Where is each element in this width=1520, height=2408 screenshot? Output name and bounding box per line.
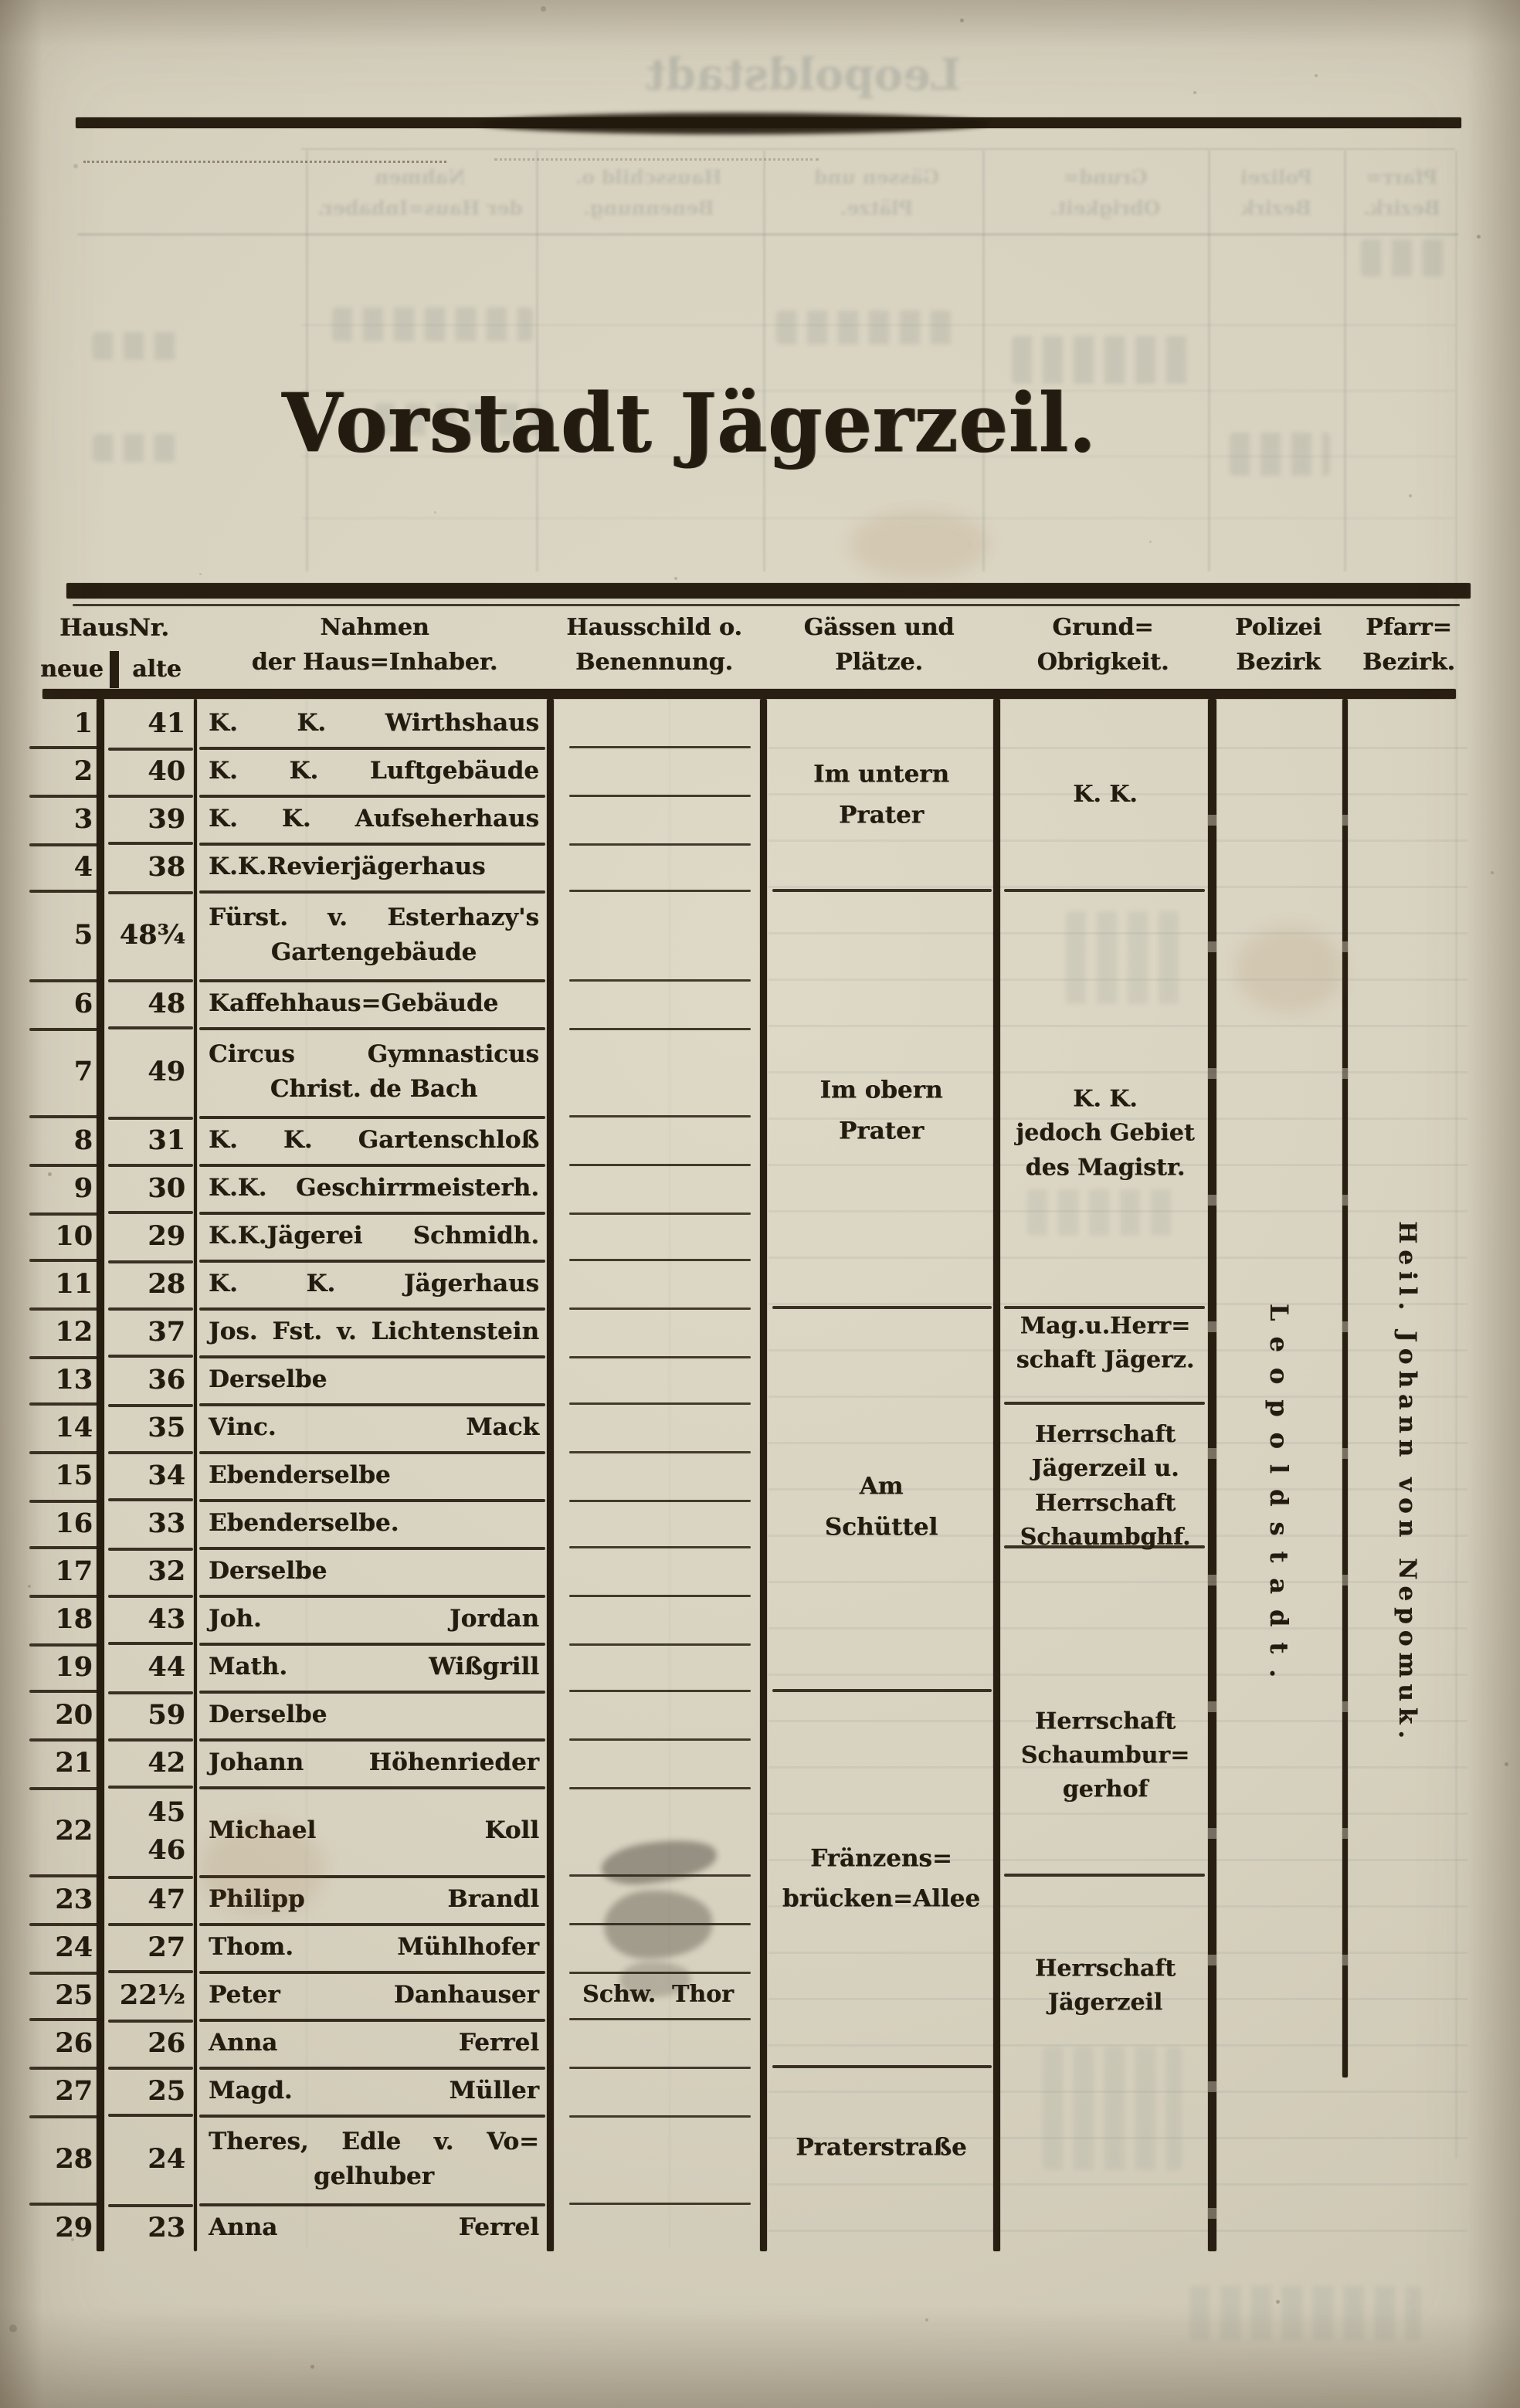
owner-name-cell: K.K. Geschirrmeisterh. xyxy=(202,1164,545,1212)
authority-section-label: K. K. jedoch Gebiet des Magistr. xyxy=(1004,1082,1206,1185)
house-number-new-cell: 27 xyxy=(31,2067,97,2115)
paper-speck xyxy=(674,577,677,580)
authority-section-separator xyxy=(1004,1874,1205,1877)
house-number-new-cell: 24 xyxy=(31,1923,97,1971)
house-number-new-cell: 19 xyxy=(31,1643,97,1691)
street-section-label: Fränzens= brücken=Allee xyxy=(771,1838,992,1919)
house-number-new-cell: 11 xyxy=(31,1260,97,1307)
owner-name-cell: Math. Wißgrill xyxy=(202,1643,545,1691)
owner-name-cell: Ebenderselbe xyxy=(202,1451,545,1499)
authority-section-label: Herrschaft Jägerzeil u. Herrschaft Schau… xyxy=(1004,1418,1206,1555)
house-sign-line xyxy=(569,2115,751,2118)
house-number-old-cell: 38 xyxy=(108,843,190,890)
hausnr-label: HausNr. xyxy=(59,610,169,646)
paper-speck xyxy=(1505,1762,1508,1766)
authority-section-label: K. K. xyxy=(1004,778,1206,812)
paper-speck xyxy=(434,511,436,514)
paper-speck xyxy=(1409,494,1412,497)
house-number-new-cell: 16 xyxy=(31,1499,97,1547)
house-sign-line xyxy=(569,2067,751,2069)
owner-name-cell: Joh. Jordan xyxy=(202,1595,545,1643)
authority-section-separator xyxy=(1004,1306,1205,1309)
owner-name-cell: K. K. Gartenschloß xyxy=(202,1116,545,1164)
house-number-old-cell: 59 xyxy=(108,1691,190,1738)
house-sign-line xyxy=(569,1259,751,1261)
house-number-new-cell: 17 xyxy=(31,1547,97,1595)
show-through-text: Pfarr= Bezirk. xyxy=(1352,151,1452,235)
ink-smudge xyxy=(604,1891,712,1959)
parish-district-label: Heil. Johann von Nepomuk. xyxy=(1393,1221,1421,1745)
owner-name-cell: Theres, Edle v. Vo=gelhuber xyxy=(202,2115,545,2203)
owner-name-cell: K. K. Wirthshaus xyxy=(202,699,545,747)
house-number-new-cell: 12 xyxy=(31,1307,97,1355)
house-number-old-cell: 23 xyxy=(108,2203,190,2251)
owner-name-cell: Ebenderselbe. xyxy=(202,1499,545,1547)
ink-smudge xyxy=(599,1835,718,1889)
house-sign-line xyxy=(569,1546,751,1548)
house-number-new-cell: 28 xyxy=(31,2115,97,2203)
authority-section-separator xyxy=(1004,1402,1205,1405)
house-number-new-cell: 20 xyxy=(31,1691,97,1738)
street-section-label: Im obern Prater xyxy=(771,1070,992,1151)
street-section-label: Im untern Prater xyxy=(771,754,992,835)
owner-name-cell: Derselbe xyxy=(202,1355,545,1403)
house-sign-line xyxy=(569,1595,751,1597)
house-sign-line xyxy=(569,1028,751,1030)
house-number-new-cell: 29 xyxy=(31,2203,97,2251)
house-number-old-cell: 41 xyxy=(108,699,190,747)
house-number-new-cell: 22 xyxy=(31,1786,97,1875)
paper-speck xyxy=(73,164,78,168)
house-number-new-cell: 4 xyxy=(31,843,97,890)
house-sign-line xyxy=(569,1356,751,1358)
house-sign-line xyxy=(569,746,751,748)
paper-speck xyxy=(9,2325,17,2332)
house-number-new-cell: 18 xyxy=(31,1595,97,1643)
header-bottom-rule xyxy=(42,689,1456,699)
owner-name-cell: Derselbe xyxy=(202,1547,545,1595)
owner-name-cell: K. K. Jägerhaus xyxy=(202,1260,545,1307)
house-number-old-cell: 35 xyxy=(108,1403,190,1451)
house-sign-line xyxy=(569,2203,751,2205)
house-number-old-cell: 44 xyxy=(108,1643,190,1691)
hausnr-divider-bar xyxy=(110,651,119,688)
show-through-text: Polizei Bezirk xyxy=(1213,151,1340,235)
house-sign-line xyxy=(569,1115,751,1118)
owner-name-cell: Jos. Fst. v. Lichtenstein xyxy=(202,1307,545,1355)
house-sign-line xyxy=(569,795,751,797)
house-number-old-cell: 40 xyxy=(108,747,190,795)
show-through-title: Leopoldstadt xyxy=(541,45,1066,107)
authority-section-label: Mag.u.Herr= schaft Jägerz. xyxy=(1004,1310,1206,1379)
house-number-old-cell: 27 xyxy=(108,1923,190,1971)
house-number-old-cell: 22½ xyxy=(108,1971,190,2019)
house-number-old-cell: 32 xyxy=(108,1547,190,1595)
column-header-polizei: Polizei Bezirk xyxy=(1217,610,1339,687)
owner-name-cell: K.K.Jägerei Schmidh. xyxy=(202,1212,545,1260)
house-number-old-cell: 30 xyxy=(108,1164,190,1212)
house-sign-line xyxy=(569,1212,751,1215)
street-section-separator xyxy=(772,2065,992,2068)
house-number-old-cell: 48 xyxy=(108,979,190,1027)
house-sign-line xyxy=(569,1164,751,1166)
owner-name-cell: Derselbe xyxy=(202,1691,545,1738)
paper-speck xyxy=(960,19,964,22)
house-number-old-cell: 37 xyxy=(108,1307,190,1355)
authority-section-separator xyxy=(1004,889,1205,892)
house-sign-line xyxy=(569,1451,751,1453)
house-number-new-cell: 3 xyxy=(31,795,97,843)
house-sign-line xyxy=(569,1643,751,1646)
house-number-new-cell: 26 xyxy=(31,2019,97,2067)
column-header-hausnr: HausNr. neue alte xyxy=(34,610,195,687)
street-section-label: Am Schüttel xyxy=(771,1466,992,1547)
authority-section-separator xyxy=(1004,1545,1205,1548)
scanned-register-page: Leopoldstadt Nahmen der Haus=Inhaber. Ha… xyxy=(0,0,1520,2408)
house-sign-line xyxy=(569,843,751,846)
house-number-old-cell: 26 xyxy=(108,2019,190,2067)
column-header-pfarr: Pfarr= Bezirk. xyxy=(1350,610,1467,687)
house-number-old-cell: 48¾ xyxy=(108,890,190,979)
house-sign-line xyxy=(569,1402,751,1405)
house-number-old-cell: 28 xyxy=(108,1260,190,1307)
house-sign-line xyxy=(569,1307,751,1310)
house-number-old-cell: 42 xyxy=(108,1738,190,1786)
show-through-text: Grund= Obrigkeit. xyxy=(1006,151,1205,235)
house-number-old-cell: 39 xyxy=(108,795,190,843)
house-number-new-cell: 15 xyxy=(31,1451,97,1499)
hausnr-alte-label: alte xyxy=(119,652,195,687)
paper-speck xyxy=(1491,871,1494,874)
house-number-new-cell: 2 xyxy=(31,747,97,795)
house-sign-line xyxy=(569,1500,751,1502)
street-section-separator xyxy=(772,1689,992,1692)
house-number-old-cell: 47 xyxy=(108,1875,190,1923)
column-header-hausschild: Hausschild o. Benennung. xyxy=(553,610,755,687)
paper-speck xyxy=(541,6,546,12)
house-number-old-cell: 25 xyxy=(108,2067,190,2115)
paper-speck xyxy=(1149,541,1152,543)
house-number-old-cell: 33 xyxy=(108,1499,190,1547)
house-number-old-cell: 43 xyxy=(108,1595,190,1643)
column-rule xyxy=(1342,699,1348,2077)
house-sign-line xyxy=(569,1738,751,1741)
paper-speck xyxy=(48,1172,52,1176)
owner-name-cell: Anna Ferrel xyxy=(202,2203,545,2251)
house-number-new-cell: 10 xyxy=(31,1212,97,1260)
house-number-new-cell: 23 xyxy=(31,1875,97,1923)
owner-name-cell: Thom. Mühlhofer xyxy=(202,1923,545,1971)
owner-name-cell: Magd. Müller xyxy=(202,2067,545,2115)
column-header-nahmen: Nahmen der Haus=Inhaber. xyxy=(207,610,542,687)
owner-name-cell: K. K. Luftgebäude xyxy=(202,747,545,795)
owner-name-cell: Fürst. v. Esterhazy'sGartengebäude xyxy=(202,890,545,979)
house-sign-line xyxy=(569,890,751,892)
house-number-old-cell: 34 xyxy=(108,1451,190,1499)
house-number-new-cell: 5 xyxy=(31,890,97,979)
house-sign-line xyxy=(569,2018,751,2020)
authority-section-label: Herrschaft Jägerzeil xyxy=(1004,1952,1206,2020)
house-number-new-cell: 6 xyxy=(31,979,97,1027)
owner-name-cell: Vinc. Mack xyxy=(202,1403,545,1451)
column-rule xyxy=(993,699,1000,2251)
show-through-text: Gässen und Plätze. xyxy=(772,151,981,235)
authority-section-label: Herrschaft Schaumbur= gerhof xyxy=(1004,1704,1206,1807)
house-number-new-cell: 14 xyxy=(31,1403,97,1451)
header-top-rule xyxy=(66,583,1471,599)
owner-name-cell: Circus GymnasticusChrist. de Bach xyxy=(202,1027,545,1116)
column-rule xyxy=(760,699,767,2251)
house-number-old-cell: 24 xyxy=(108,2115,190,2203)
column-header-grund: Grund= Obrigkeit. xyxy=(1001,610,1205,687)
house-number-old-cell: 31 xyxy=(108,1116,190,1164)
house-number-new-cell: 7 xyxy=(31,1027,97,1116)
house-sign-line xyxy=(569,979,751,982)
street-section-separator xyxy=(772,1306,992,1309)
street-section-label: Praterstraße xyxy=(771,2127,992,2168)
show-through-text: Nahmen der Haus=Inhaber. xyxy=(307,151,533,235)
house-number-old-cell: 36 xyxy=(108,1355,190,1403)
paper-speck xyxy=(1315,74,1318,77)
paper-speck xyxy=(71,2238,74,2241)
hausnr-neue-label: neue xyxy=(34,652,110,687)
house-number-new-cell: 21 xyxy=(31,1738,97,1786)
house-sign-line xyxy=(569,1690,751,1692)
paper-speck xyxy=(28,1585,31,1588)
show-through-text: Hausschild o. Benennung. xyxy=(541,151,757,235)
house-number-old-cell: 49 xyxy=(108,1027,190,1116)
house-number-new-cell: 13 xyxy=(31,1355,97,1403)
paper-speck xyxy=(1276,2300,1280,2304)
paper-speck xyxy=(310,2365,314,2369)
owner-name-cell: Peter Danhauser xyxy=(202,1971,545,2019)
paper-speck xyxy=(1193,91,1196,94)
paper-speck xyxy=(199,573,202,575)
column-rule xyxy=(194,699,197,2251)
house-number-new-cell: 25 xyxy=(31,1971,97,2019)
house-number-new-cell: 9 xyxy=(31,1164,97,1212)
house-number-new-cell: 8 xyxy=(31,1116,97,1164)
owner-name-cell: Johann Höhenrieder xyxy=(202,1738,545,1786)
paper-speck xyxy=(1477,235,1481,239)
house-number-new-cell: 1 xyxy=(31,699,97,747)
column-rule xyxy=(547,699,554,2251)
paper-speck xyxy=(925,2318,928,2322)
owner-name-cell: Kaffehhaus=Gebäude xyxy=(202,979,545,1027)
page-title: Vorstadt Jägerzeil. xyxy=(282,375,1097,471)
house-sign-line xyxy=(569,1787,751,1789)
owner-name-cell: Anna Ferrel xyxy=(202,2019,545,2067)
house-number-old-cell: 4546 xyxy=(108,1786,190,1875)
street-section-separator xyxy=(772,889,992,892)
owner-name-cell: K. K. Aufseherhaus xyxy=(202,795,545,843)
owner-name-cell: K.K.Revierjägerhaus xyxy=(202,843,545,890)
house-number-old-cell: 29 xyxy=(108,1212,190,1260)
column-header-gaessen: Gässen und Plätze. xyxy=(769,610,989,687)
police-district-label: Leopoldstadt. xyxy=(1264,1304,1294,1693)
paper-speck xyxy=(1066,1799,1069,1803)
column-rule xyxy=(1208,699,1216,2251)
